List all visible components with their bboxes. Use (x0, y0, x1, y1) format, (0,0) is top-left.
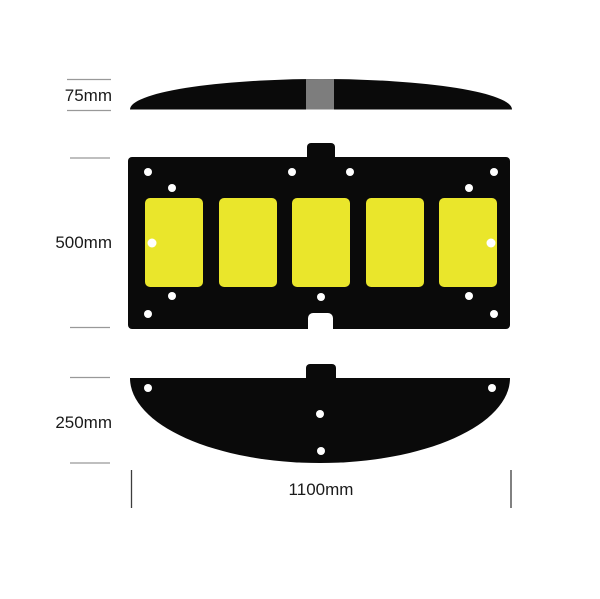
bolt-hole (144, 310, 152, 318)
bolt-hole (490, 168, 498, 176)
dim-label-1100mm: 1100mm (289, 480, 354, 499)
bolt-hole (316, 410, 324, 418)
bolt-hole (487, 239, 496, 248)
bolt-hole (144, 168, 152, 176)
bolt-hole (288, 168, 296, 176)
bolt-hole (148, 239, 157, 248)
height-dimension-75mm: 75mm (65, 80, 112, 111)
plan-bottom-notch (308, 313, 333, 335)
reflective-panel (292, 198, 350, 287)
dim-label-500mm: 500mm (55, 233, 112, 252)
bolt-hole (317, 447, 325, 455)
bolt-hole (168, 184, 176, 192)
dim-label-250mm: 250mm (55, 413, 112, 432)
bolt-hole (144, 384, 152, 392)
side-profile-connector-band (306, 76, 334, 112)
side-profile-view (130, 76, 512, 112)
bolt-hole (346, 168, 354, 176)
speed-hump-drawing: 75mm (0, 0, 600, 599)
dim-label-75mm: 75mm (65, 86, 112, 105)
reflective-panel (219, 198, 277, 287)
bolt-hole (465, 184, 473, 192)
bolt-hole (465, 292, 473, 300)
drawing-canvas: 75mm (0, 0, 600, 599)
plan-view (128, 143, 510, 335)
bolt-hole (168, 292, 176, 300)
reflective-panels (145, 198, 497, 287)
bolt-hole (490, 310, 498, 318)
height-dimension-250mm: 250mm (55, 378, 112, 464)
bolt-hole (317, 293, 325, 301)
reflective-panel (366, 198, 424, 287)
height-dimension-500mm: 500mm (55, 158, 112, 328)
bolt-hole (488, 384, 496, 392)
end-profile-view (130, 364, 510, 463)
length-dimension-1100mm: 1100mm (132, 470, 512, 508)
